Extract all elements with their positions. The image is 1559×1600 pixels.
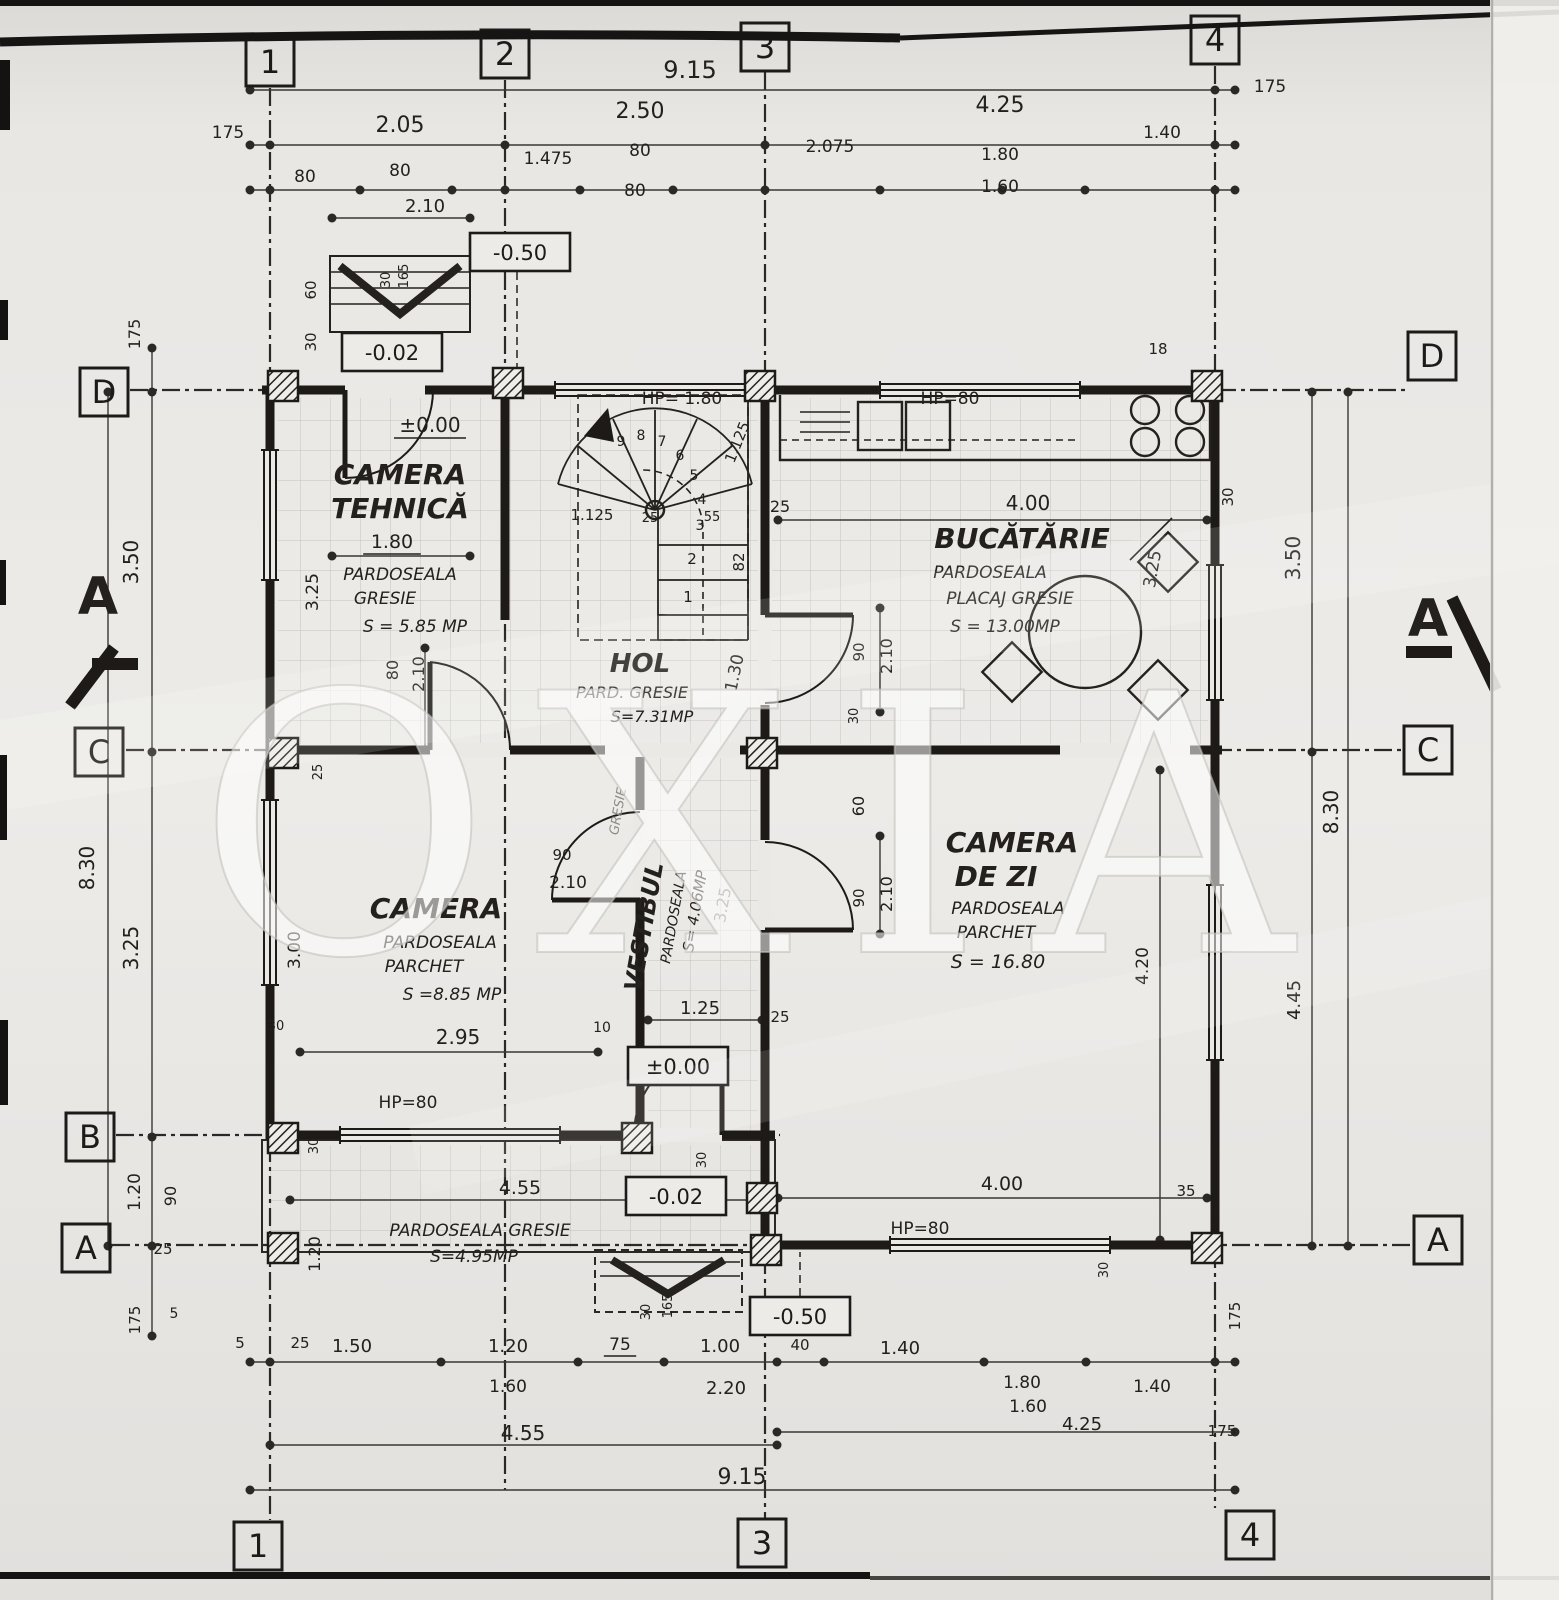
dim-left-90: 90 xyxy=(161,1186,180,1206)
dim-right-175-bottom: 175 xyxy=(1226,1302,1244,1331)
dimension-dot xyxy=(246,1358,255,1367)
dim-top-210: 2.10 xyxy=(405,196,445,217)
dimension-dot xyxy=(1211,1358,1220,1367)
svg-text:B: B xyxy=(79,1118,101,1156)
dim-bot-40: 40 xyxy=(790,1336,809,1354)
dim-camera-hp80: HP=80 xyxy=(379,1093,438,1113)
dimension-dot xyxy=(437,1358,446,1367)
level-minus002-top: -0.02 xyxy=(342,333,442,371)
dim-top-140: 1.40 xyxy=(1143,123,1181,143)
stair-step-3: 3 xyxy=(696,518,705,534)
porch-60: 60 xyxy=(302,280,320,299)
dimension-dot xyxy=(266,1441,275,1450)
svg-text:2: 2 xyxy=(495,35,515,73)
dimension-dot xyxy=(761,141,770,150)
dimension-dot xyxy=(448,186,457,195)
stair-hp: HP= 1.80 xyxy=(642,389,723,409)
dim-bot-400: 4.00 xyxy=(981,1173,1023,1195)
dim-bot-160a: 1.60 xyxy=(489,1377,527,1397)
dimension-dot xyxy=(1344,388,1353,397)
dim-right-30: 30 xyxy=(1219,487,1237,506)
stair-step-8: 8 xyxy=(637,428,646,444)
dimension-dot xyxy=(266,141,275,150)
svg-text:D: D xyxy=(1420,337,1445,375)
dimension-dot xyxy=(1211,141,1220,150)
dimension-dot xyxy=(1203,1194,1212,1203)
dimension-dot xyxy=(328,552,337,561)
dim-camera-30b: 30 xyxy=(307,1138,322,1155)
dim-bot-180: 1.80 xyxy=(1003,1373,1041,1393)
dimension-dot xyxy=(774,516,783,525)
svg-text:A: A xyxy=(1427,1221,1449,1259)
level-minus050-bottom: -0.50 xyxy=(750,1297,850,1335)
dim-ct-325: 3.25 xyxy=(303,573,323,611)
dimension-dot xyxy=(286,1196,295,1205)
stair-step-4: 4 xyxy=(698,492,707,508)
dim-left-830: 8.30 xyxy=(75,846,99,891)
dimension-dot xyxy=(148,1133,157,1142)
dim-bot-150: 1.50 xyxy=(332,1336,372,1357)
dim-left-325: 3.25 xyxy=(119,926,143,971)
dim-bot-160b: 1.60 xyxy=(1009,1397,1047,1417)
dimension-dot xyxy=(1344,1242,1353,1251)
stair-step-6: 6 xyxy=(676,448,685,464)
dimension-dot xyxy=(328,214,337,223)
door-entry-30: 30 xyxy=(695,1152,710,1169)
dimension-dot xyxy=(266,1358,275,1367)
dimension-dot xyxy=(576,186,585,195)
dim-bot-120: 1.20 xyxy=(488,1336,528,1357)
dim-left-120: 1.20 xyxy=(125,1173,145,1211)
dim-bot-220: 2.20 xyxy=(706,1378,746,1399)
dim-bot-75: 75 xyxy=(609,1335,631,1355)
svg-text:D: D xyxy=(92,373,117,411)
stair-25a: 25 xyxy=(642,511,659,526)
dim-margin-left-top: 175 xyxy=(212,123,244,143)
dim-margin-right-top: 175 xyxy=(1254,77,1286,97)
dim-bot-hp80: HP=80 xyxy=(891,1219,950,1239)
dim-overall-top: 9.15 xyxy=(663,56,716,84)
dimension-dot xyxy=(773,1428,782,1437)
svg-text:-0.02: -0.02 xyxy=(649,1185,703,1209)
stair-25-wall: 25 xyxy=(770,497,790,516)
dimension-dot xyxy=(594,1048,603,1057)
dim-terrace-455: 4.55 xyxy=(499,1177,541,1199)
dim-bot-140a: 1.40 xyxy=(880,1338,920,1359)
dim-top-80-d: 80 xyxy=(624,181,646,201)
room-terrace-floor: PARDOSEALA GRESIE xyxy=(389,1221,571,1241)
dimension-dot xyxy=(296,1048,305,1057)
svg-text:3: 3 xyxy=(752,1524,772,1562)
dimension-dot xyxy=(660,1358,669,1367)
svg-text:A: A xyxy=(75,1229,97,1267)
dimension-dot xyxy=(1231,1358,1240,1367)
room-terrace-area: S=4.95MP xyxy=(430,1247,519,1267)
dimension-dot xyxy=(1308,1242,1317,1251)
level-pm000-ct: ±0.00 xyxy=(399,413,460,437)
dimension-dot xyxy=(266,186,275,195)
stair-step-9: 9 xyxy=(617,434,626,450)
dimension-dot xyxy=(1231,186,1240,195)
scanned-floor-plan-page: 1234134DCBADCA -0.50-0.02±0.00-0.02-0.50… xyxy=(0,0,1559,1600)
stair-82: 82 xyxy=(730,552,748,571)
dimension-dot xyxy=(820,1358,829,1367)
dim-bot-100: 1.00 xyxy=(700,1336,740,1357)
dim-left-25b: 25 xyxy=(290,1334,309,1352)
dimension-dot xyxy=(761,186,770,195)
dimension-dot xyxy=(1231,86,1240,95)
dim-top-160: 1.60 xyxy=(981,177,1019,197)
dim-terrace-120: 1.20 xyxy=(305,1236,324,1272)
dim-bot-455: 4.55 xyxy=(501,1421,546,1445)
svg-text:-0.02: -0.02 xyxy=(365,341,419,365)
room-camera-tehnica-floor-2: GRESIE xyxy=(354,589,417,609)
dimension-dot xyxy=(669,186,678,195)
dimension-dot xyxy=(1203,516,1212,525)
dimension-dot xyxy=(466,214,475,223)
svg-text:4: 4 xyxy=(1240,1516,1260,1554)
svg-text:-0.50: -0.50 xyxy=(493,241,547,265)
dimension-dot xyxy=(246,141,255,150)
dim-left-5a: 5 xyxy=(170,1306,179,1322)
dim-left-175-bottom: 175 xyxy=(126,1306,144,1335)
svg-text:1: 1 xyxy=(248,1527,268,1565)
dimension-dot xyxy=(1308,388,1317,397)
dim-bot-915: 9.15 xyxy=(718,1465,767,1490)
dim-left-25: 25 xyxy=(153,1240,172,1258)
dim-top-1475: 1.475 xyxy=(524,149,573,169)
stair-55: 55 xyxy=(704,510,721,525)
stair-step-1: 1 xyxy=(683,588,693,606)
dim-kitchen-hp80: HP=80 xyxy=(921,389,980,409)
dimension-dot xyxy=(148,388,157,397)
dim-top-2075: 2.075 xyxy=(806,137,855,157)
porch-165: 165 xyxy=(397,264,412,289)
dimension-dot xyxy=(501,141,510,150)
dim-right-175-low: 175 xyxy=(1208,1422,1237,1440)
dimension-dot xyxy=(574,1358,583,1367)
dim-top-80-a: 80 xyxy=(294,167,316,187)
dim-top-80-c: 80 xyxy=(629,141,651,161)
dim-top-80-b: 80 xyxy=(389,161,411,181)
floor-plan-drawing: 1234134DCBADCA -0.50-0.02±0.00-0.02-0.50… xyxy=(0,0,1559,1600)
dimension-dot xyxy=(246,186,255,195)
stair-1125-h: 1.125 xyxy=(571,506,614,524)
dimension-dot xyxy=(1211,86,1220,95)
section-a-right: A xyxy=(1408,589,1448,649)
dim-kitchen-18: 18 xyxy=(1148,340,1167,358)
level-minus002-terrace: -0.02 xyxy=(626,1177,726,1215)
porch-30b: 30 xyxy=(302,332,320,351)
level-minus050-top: -0.50 xyxy=(470,233,570,271)
dimension-dot xyxy=(773,1441,782,1450)
dimension-dot xyxy=(246,1486,255,1495)
dimension-dot xyxy=(148,344,157,353)
dimension-dot xyxy=(1231,1486,1240,1495)
dim-top-180: 1.80 xyxy=(981,145,1019,165)
room-camera-tehnica-dim: 1.80 xyxy=(371,531,413,553)
dim-left-350: 3.50 xyxy=(119,540,143,585)
steps-165: 165 xyxy=(661,1294,676,1319)
dimension-dot xyxy=(1231,141,1240,150)
stair-step-5: 5 xyxy=(690,468,699,484)
stair-step-7: 7 xyxy=(658,434,667,450)
room-camera-tehnica-title-2: TEHNICĂ xyxy=(331,491,469,525)
room-camera-tehnica-title-1: CAMERA xyxy=(334,458,466,491)
dimension-dot xyxy=(1211,186,1220,195)
svg-text:1: 1 xyxy=(260,43,280,81)
dim-kitchen-400: 4.00 xyxy=(1006,491,1051,515)
stair-step-2: 2 xyxy=(687,550,697,568)
svg-text:C: C xyxy=(1417,731,1439,769)
dim-cdz-35: 35 xyxy=(1176,1182,1195,1200)
dimension-dot xyxy=(1081,186,1090,195)
dim-2-3: 2.50 xyxy=(616,99,665,124)
dim-cdz-30: 30 xyxy=(1097,1262,1112,1279)
dimension-dot xyxy=(1082,1358,1091,1367)
dimension-dot xyxy=(501,186,510,195)
porch-30: 30 xyxy=(379,272,394,289)
dimension-dot xyxy=(466,552,475,561)
dim-bot-425: 4.25 xyxy=(1062,1414,1102,1435)
dim-bot-140b: 1.40 xyxy=(1133,1377,1171,1397)
dim-1-2: 2.05 xyxy=(376,113,425,138)
dimension-dot xyxy=(148,1332,157,1341)
dimension-dot xyxy=(876,186,885,195)
dimension-dot xyxy=(773,1358,782,1367)
svg-text:-0.50: -0.50 xyxy=(773,1305,827,1329)
dimension-dot xyxy=(356,186,365,195)
room-camera-tehnica-floor-1: PARDOSEALA xyxy=(343,565,457,585)
dim-left-5b: 5 xyxy=(235,1334,245,1352)
section-a-left: A xyxy=(78,567,118,627)
steps-30: 30 xyxy=(639,1304,654,1321)
dimension-dot xyxy=(980,1358,989,1367)
dim-3-4: 4.25 xyxy=(976,93,1025,118)
dim-left-175-top: 175 xyxy=(125,319,144,350)
